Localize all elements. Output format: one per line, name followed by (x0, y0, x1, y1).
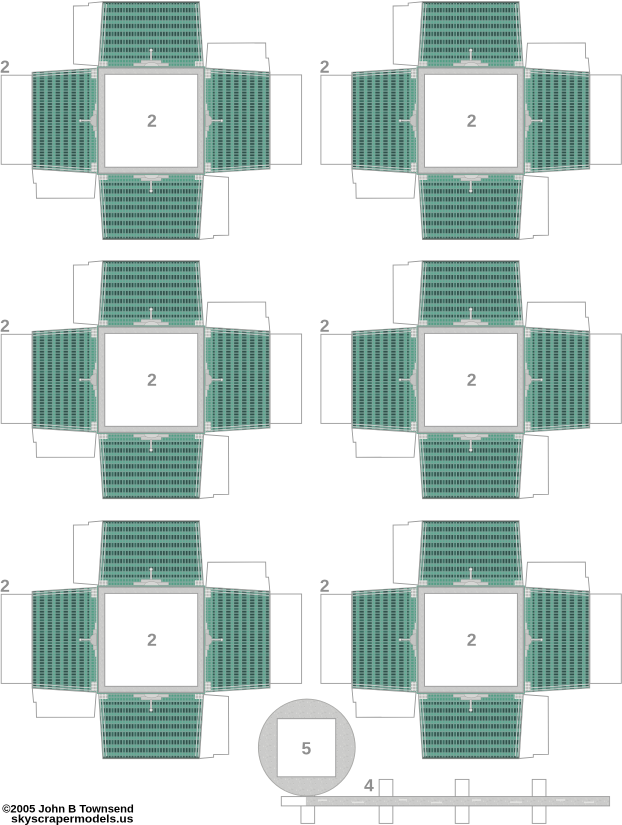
svg-text:skyscrapermodels.us: skyscrapermodels.us (11, 813, 133, 825)
